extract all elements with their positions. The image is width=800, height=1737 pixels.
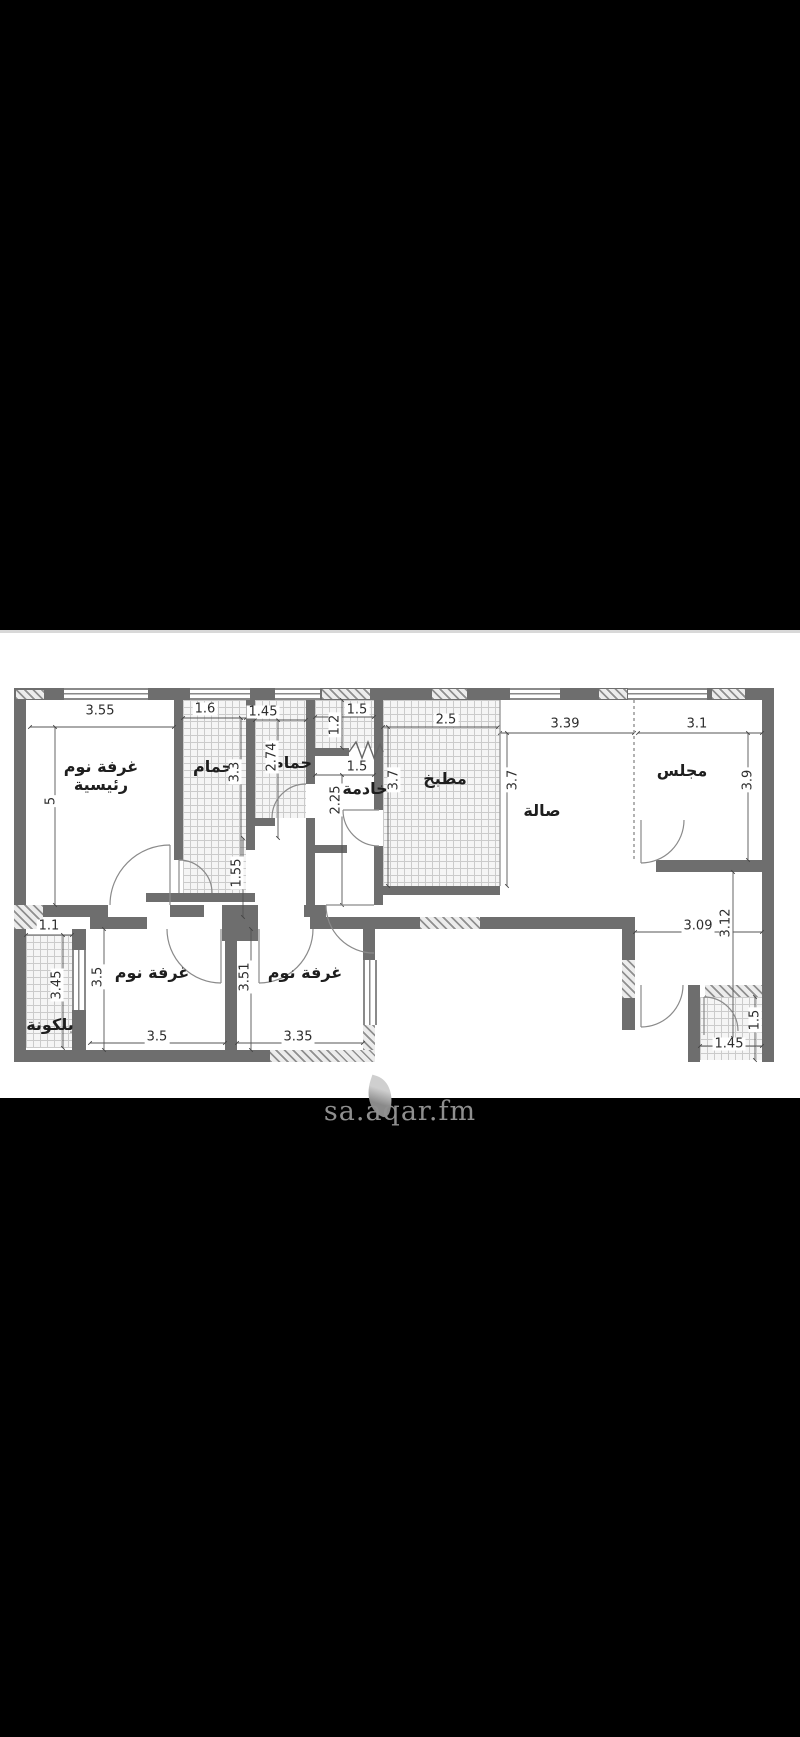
room-label-bedroom-2: غرفة نوم: [265, 964, 345, 982]
dimension-label: 2.25: [330, 784, 343, 817]
dimension-label: 3.55: [84, 705, 117, 718]
floor-plan-photo-panel: غرفة نوم رئيسية حمام حمام خادمة مطبخ صال…: [0, 630, 800, 1098]
plan-linework: [14, 688, 774, 1064]
room-label-hall: صالة: [513, 802, 571, 820]
photo-edge-line: [0, 630, 800, 633]
dimension-label: 3.45: [51, 969, 64, 1002]
room-label-maid-room: خادمة: [336, 780, 394, 798]
dimension-label: 3.5: [92, 965, 105, 990]
dimension-label: 1.6: [193, 703, 218, 716]
dimension-label: 1.5: [345, 704, 370, 717]
shaft-zigzag: [349, 742, 383, 758]
dimension-label: 3.39: [549, 718, 582, 731]
room-label-majlis: مجلس: [650, 762, 714, 780]
dimension-label: 3.51: [239, 961, 252, 994]
dimension-label: 3.9: [742, 768, 755, 793]
door-arc-master: [110, 845, 170, 905]
floor-plan: غرفة نوم رئيسية حمام حمام خادمة مطبخ صال…: [14, 688, 774, 1064]
dimension-label: 1.5: [345, 761, 370, 774]
watermark-text: sa.aqar.fm: [324, 1096, 476, 1127]
dimension-label: 1.55: [231, 857, 244, 890]
dimension-label: 5: [45, 795, 58, 807]
dimension-label: 2.5: [434, 714, 459, 727]
door-arc-entry: [641, 985, 683, 1027]
dimension-label: 2.74: [266, 741, 279, 774]
dimension-label: 1.5: [749, 1008, 762, 1033]
dimension-label: 3.7: [507, 768, 520, 793]
dimension-label: 3.12: [720, 907, 733, 940]
room-label-bedroom-1: غرفة نوم: [112, 964, 192, 982]
room-label-kitchen: مطبخ: [413, 770, 477, 788]
dimension-label: 3.5: [145, 1031, 170, 1044]
dimension-label: 3.7: [388, 768, 401, 793]
door-arc-kitchen: [326, 905, 374, 953]
dimension-label: 3.35: [282, 1031, 315, 1044]
dimension-label: 3.1: [685, 718, 710, 731]
screenshot-root: { "screen": { "background": "#000000", "…: [0, 0, 800, 1737]
door-arc-bath2: [272, 784, 306, 818]
room-label-master-bedroom: غرفة نوم رئيسية: [36, 758, 166, 793]
door-arcs: [110, 784, 738, 1035]
door-arc-bath1: [179, 860, 212, 893]
door-arc-maid: [343, 810, 379, 846]
watermark: sa.aqar.fm: [0, 1096, 800, 1127]
dimension-label: 1.2: [329, 713, 342, 738]
dimension-lines: [26, 700, 762, 1060]
door-arc-majlis: [641, 820, 684, 863]
dimension-label: 1.45: [247, 706, 280, 719]
room-label-balcony: بلكونة: [22, 1016, 78, 1034]
dimension-label: 1.1: [37, 920, 62, 933]
dimension-label: 3.3: [229, 760, 242, 785]
dimension-label: 1.45: [713, 1038, 746, 1051]
dimension-label: 3.09: [682, 920, 715, 933]
